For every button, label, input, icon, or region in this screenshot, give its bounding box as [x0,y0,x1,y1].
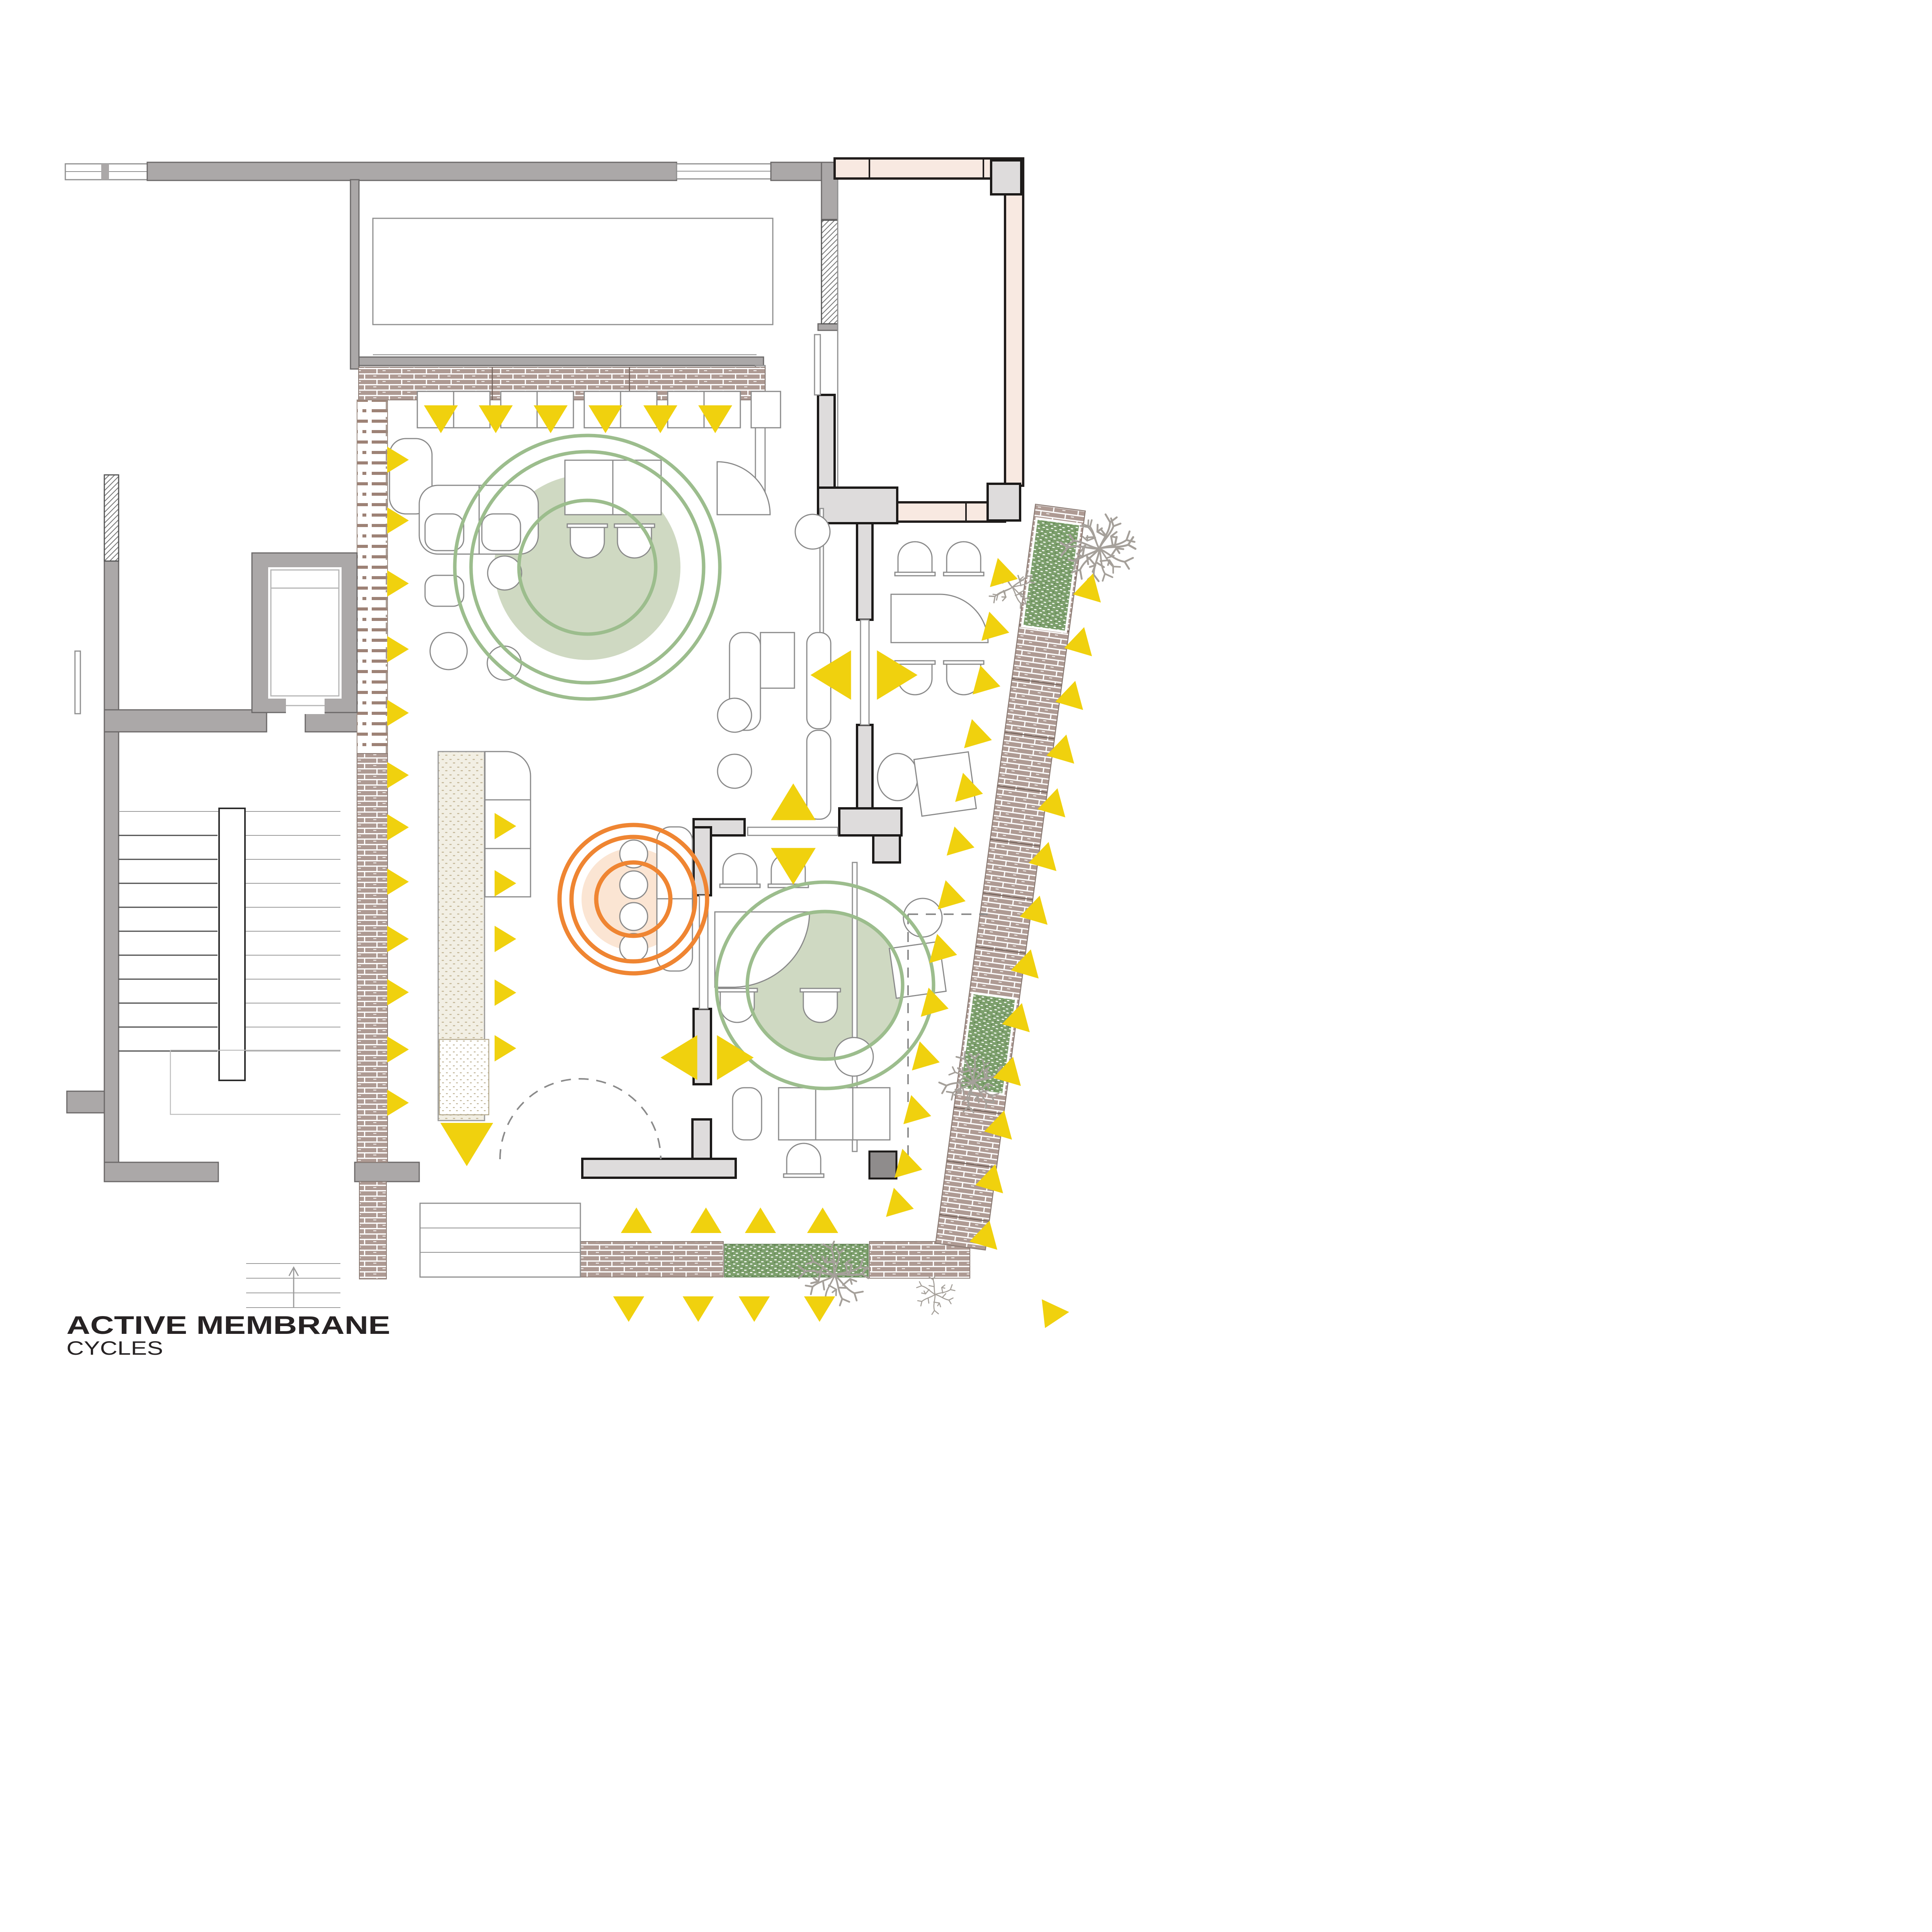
round-chair [488,556,522,590]
table [565,460,613,515]
south-brick-band [580,1242,723,1277]
flow-triangle [895,1149,926,1184]
terrace-furniture [878,542,988,998]
bench [807,730,831,819]
stage-platform [373,218,773,325]
pier-block [869,1151,896,1179]
flow-triangle [690,1207,722,1233]
flow-triangle [1031,1299,1069,1334]
title-block: ACTIVE MEMBRANE CYCLES [66,1311,390,1359]
junction-block [839,808,901,835]
west-wall [104,561,119,1178]
round-chair [620,903,648,930]
floor-plan-canvas: ACTIVE MEMBRANE CYCLES [0,0,1932,1932]
flow-triangle [621,1207,652,1233]
stair-newel-wall [219,808,245,1080]
round-table [487,646,521,680]
south-wall-west [104,1162,218,1182]
flow-triangle [387,1036,409,1063]
flow-triangle [613,1296,645,1322]
flow-triangle [387,979,409,1005]
terrace-wall-upper [857,523,872,620]
staircase [119,808,340,1308]
flow-triangle [495,980,516,1006]
flow-triangle [387,869,409,895]
chair [482,514,520,551]
page-subtitle: CYCLES [66,1337,163,1359]
flow-triangle [886,1188,918,1223]
round-table [430,633,467,670]
flow-triangle [739,1296,770,1322]
d-table [891,594,988,643]
flow-triangle [495,926,516,952]
flow-triangle [387,636,409,662]
flow-triangle [745,1207,776,1233]
flow-triangle [387,762,409,788]
chair [733,1088,762,1140]
flow-triangle [912,1041,944,1077]
conservatory-east-wall [1005,179,1023,486]
flow-triangle [807,1207,838,1233]
table [613,460,661,515]
flow-triangle [387,570,409,597]
south-wall-east [355,1162,419,1182]
flow-triangle [440,1123,493,1166]
kitchen-partition-wall [350,180,359,369]
flow-triangle [387,926,409,952]
round-chair [718,754,752,788]
table [760,633,794,688]
west-brick-band [357,753,388,1162]
flow-triangle [387,1090,409,1116]
hatched-column-west [104,475,119,561]
flow-triangle [938,880,969,916]
round-chair [795,514,830,549]
flow-triangle [990,558,1022,594]
rug [439,1039,489,1115]
stair-direction-arrow [289,1267,298,1308]
flow-triangle [683,1296,714,1322]
round-chair [718,698,752,732]
planter-boxes [420,1203,580,1277]
flow-triangle [804,1296,835,1322]
vestibule-wall [582,1159,736,1178]
booth [779,1088,890,1140]
page-title: ACTIVE MEMBRANE [66,1311,390,1339]
door-swing-arc [500,1079,661,1159]
bar-back-shelf-strip [357,400,388,753]
stair-hall-north-wall [104,710,267,732]
flow-triangle [495,1035,516,1061]
north-wall [147,162,677,180]
flow-triangle [387,700,409,726]
conservatory-corner-block-ne [991,160,1021,194]
dining-north-wall [359,357,764,366]
flow-triangle [661,1035,697,1080]
flow-triangle [947,827,978,862]
hatched-column-east [821,220,838,324]
round-chair [620,871,648,899]
flow-triangle [387,814,409,840]
conservatory-room [835,158,1023,522]
activity-zone-fills [494,474,901,1060]
round-table [878,753,918,801]
terrace-wall-lower [857,725,872,808]
elevator [252,553,357,714]
flow-triangle [964,719,996,755]
west-wall-stub [67,1091,104,1113]
conservatory-corner-block-se [988,484,1020,520]
